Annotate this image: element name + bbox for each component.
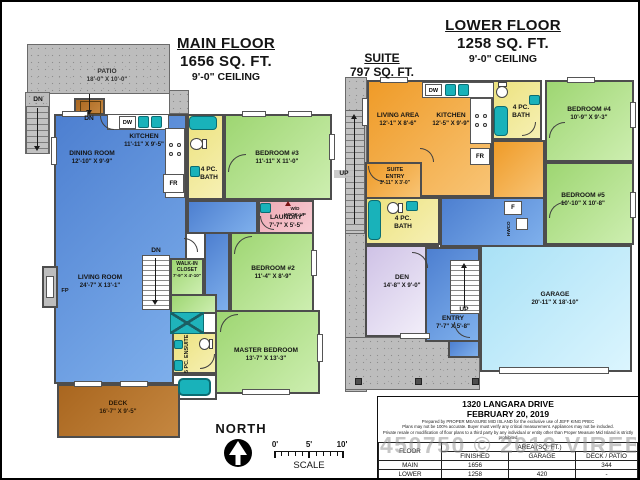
fridge: FR	[163, 174, 184, 193]
lower-floor-ceiling: 9'-0" CEILING	[424, 53, 582, 66]
bedroom2-label: BEDROOM #2 11'-4" X 8'-9"	[237, 265, 309, 280]
hwco-label: HWCO	[506, 215, 512, 243]
window	[630, 192, 636, 218]
lower-bath-sink	[406, 201, 418, 211]
suite-kitchen-label: KITCHEN 12'-5" X 9'-9"	[420, 112, 482, 127]
post	[355, 378, 362, 385]
living-label: LIVING ROOM 24'-7" X 13'-1"	[64, 274, 136, 289]
patio-extension	[169, 90, 189, 114]
scale-ruler-mid	[308, 451, 310, 458]
room-suite-corridor	[492, 140, 545, 200]
table-row-main: MAIN 1656 344	[379, 461, 638, 470]
lower-floor-area: 1258 SQ. FT.	[424, 35, 582, 53]
interior-stair-arrow-icon	[152, 300, 158, 305]
suite-kitchen-sink	[458, 84, 469, 96]
room-hall	[187, 200, 258, 234]
post	[472, 378, 479, 385]
suite-toilet-tank	[498, 82, 507, 87]
room-entry-stub	[448, 340, 480, 358]
bathtub	[189, 116, 217, 130]
main-bath-label: 4 PC. BATH	[194, 166, 224, 182]
stair-arrow-line	[354, 119, 355, 224]
stair-arrow-down-icon	[34, 146, 40, 151]
suite-bath-label: 4 PC. BATH	[504, 104, 538, 120]
room-garage	[480, 245, 632, 372]
lower-floor-title: LOWER FLOOR	[424, 17, 582, 35]
lower-toilet-tank	[398, 203, 403, 213]
window	[288, 111, 312, 117]
table-row-lower: LOWER 1258 420 -	[379, 470, 638, 479]
linen-closet	[170, 312, 204, 334]
mls-watermark: 450750 © 2019 VIREB	[380, 432, 636, 459]
cell-lower-deck: -	[576, 470, 638, 479]
bedroom5-label: BEDROOM #5 10'-10" X 10'-8"	[545, 192, 621, 207]
dishwasher: DW	[119, 116, 136, 129]
north-arrow-icon	[223, 438, 253, 468]
dn-label-interior: DN	[144, 247, 168, 255]
cell-main-deck: 344	[576, 461, 638, 470]
fireplace-inner	[46, 276, 54, 298]
window	[242, 389, 290, 395]
north-label: NORTH	[210, 421, 272, 437]
dn-label-steps: DN	[80, 115, 98, 123]
patio-label: PATIO 18'-0" X 10'-0"	[67, 68, 147, 83]
lower-floor-title-block: LOWER FLOOR 1258 SQ. FT. 9'-0" CEILING	[424, 17, 582, 66]
door-arc	[184, 238, 198, 252]
scale-tick-10: 10'	[333, 440, 351, 450]
entry-label: ENTRY 7'-7" X 5'-8"	[429, 315, 477, 330]
cell-main-garage	[509, 461, 576, 470]
suite-title-block: SUITE 797 SQ. FT.	[342, 51, 422, 80]
window	[317, 334, 323, 362]
window	[400, 333, 430, 339]
floorplan-canvas: MAIN FLOOR 1656 SQ. FT. 9'-0" CEILING DN…	[0, 0, 640, 480]
scale-tick-0: 0'	[268, 440, 282, 450]
cell-lower-floor: LOWER	[379, 470, 442, 479]
window	[329, 134, 335, 160]
hot-water-tank	[516, 218, 528, 230]
cell-lower-garage: 420	[509, 470, 576, 479]
kitchen-label: KITCHEN 11'-11" X 9'-5"	[110, 133, 178, 148]
furnace: F	[504, 201, 522, 215]
suite-dishwasher: DW	[425, 84, 442, 96]
main-floor-area: 1656 SQ. FT.	[150, 53, 302, 71]
interior-stair-arrow	[155, 258, 156, 302]
ensuite-toilet-tank	[209, 339, 213, 349]
stair-arrow-line	[37, 108, 38, 146]
post	[415, 378, 422, 385]
up-label-exterior: UP	[334, 170, 354, 178]
lower-bath-label: 4 PC. BATH	[386, 215, 420, 231]
suite-area: 797 SQ. FT.	[342, 65, 422, 79]
lower-bathtub	[368, 200, 381, 240]
ensuite-sink	[174, 360, 183, 371]
cell-main-finished: 1656	[442, 461, 509, 470]
kitchen-sink	[151, 116, 162, 128]
main-floor-title-block: MAIN FLOOR 1656 SQ. FT. 9'-0" CEILING	[150, 35, 302, 84]
interior-stair-arrow	[464, 268, 465, 308]
window	[630, 102, 636, 128]
ensuite-bathtub	[178, 378, 211, 396]
up-label-interior: UP	[454, 306, 474, 314]
plan-date: FEBRUARY 20, 2019	[378, 409, 638, 419]
den-label: DEN 14'-8" X 9'-0"	[370, 274, 434, 289]
suite-toilet	[496, 86, 508, 98]
main-floor-ceiling: 9'-0" CEILING	[150, 71, 302, 84]
deck-label: DECK 16'-7" X 9'-5"	[82, 400, 154, 415]
address: 1320 LANGARA DRIVE	[378, 399, 638, 409]
suite-kitchen-sink	[445, 84, 456, 96]
bedroom4-label: BEDROOM #4 10'-9" X 9'-3"	[552, 106, 626, 121]
ensuite-label: 5 PC. ENSUITE	[184, 337, 190, 373]
scale-tick-5: 5'	[302, 440, 316, 450]
suite-title: SUITE	[342, 51, 422, 65]
suite-fridge: FR	[470, 148, 490, 165]
dn-label-exterior: DN	[29, 96, 47, 104]
garage-door	[499, 367, 609, 374]
stove-burner	[483, 123, 487, 127]
window	[567, 77, 595, 83]
scale-label: SCALE	[286, 460, 332, 471]
stove-burner	[169, 152, 173, 156]
bedroom3-label: BEDROOM #3 11'-11" X 11'-0"	[240, 150, 314, 165]
wic-label: WALK-IN CLOSET 7'-9" X 4'-10"	[169, 261, 205, 279]
scale-ruler-end	[274, 451, 276, 458]
room-master-hall	[170, 294, 217, 314]
kitchen-sink	[138, 116, 149, 128]
master-label: MASTER BEDROOM 13'-7" X 13'-3"	[224, 347, 308, 362]
scale-ruler-end	[342, 451, 344, 458]
window	[311, 250, 317, 276]
toilet-tank	[202, 139, 207, 149]
window	[242, 111, 266, 117]
cell-main-floor: MAIN	[379, 461, 442, 470]
main-floor-title: MAIN FLOOR	[150, 35, 302, 53]
washer	[260, 203, 271, 213]
laundry-label: LAUNDRY 7'-7" X 5'-5"	[260, 214, 312, 229]
stove-burner	[177, 152, 181, 156]
garage-label: GARAGE 20'-11" X 18'-10"	[514, 291, 596, 306]
dining-label: DINING ROOM 12'-10" X 9'-9"	[57, 150, 127, 165]
stove-burner	[483, 114, 487, 118]
cell-lower-finished: 1258	[442, 470, 509, 479]
window	[120, 381, 148, 387]
window	[74, 381, 102, 387]
room-utility-hall	[440, 197, 545, 247]
suite-entry-label: SUITE ENTRY 3'-11" X 3'-0"	[372, 167, 418, 186]
ensuite-sink	[174, 340, 183, 349]
disclaimer-2: Plans may not be 100% accurate. Buyer mu…	[378, 424, 638, 429]
